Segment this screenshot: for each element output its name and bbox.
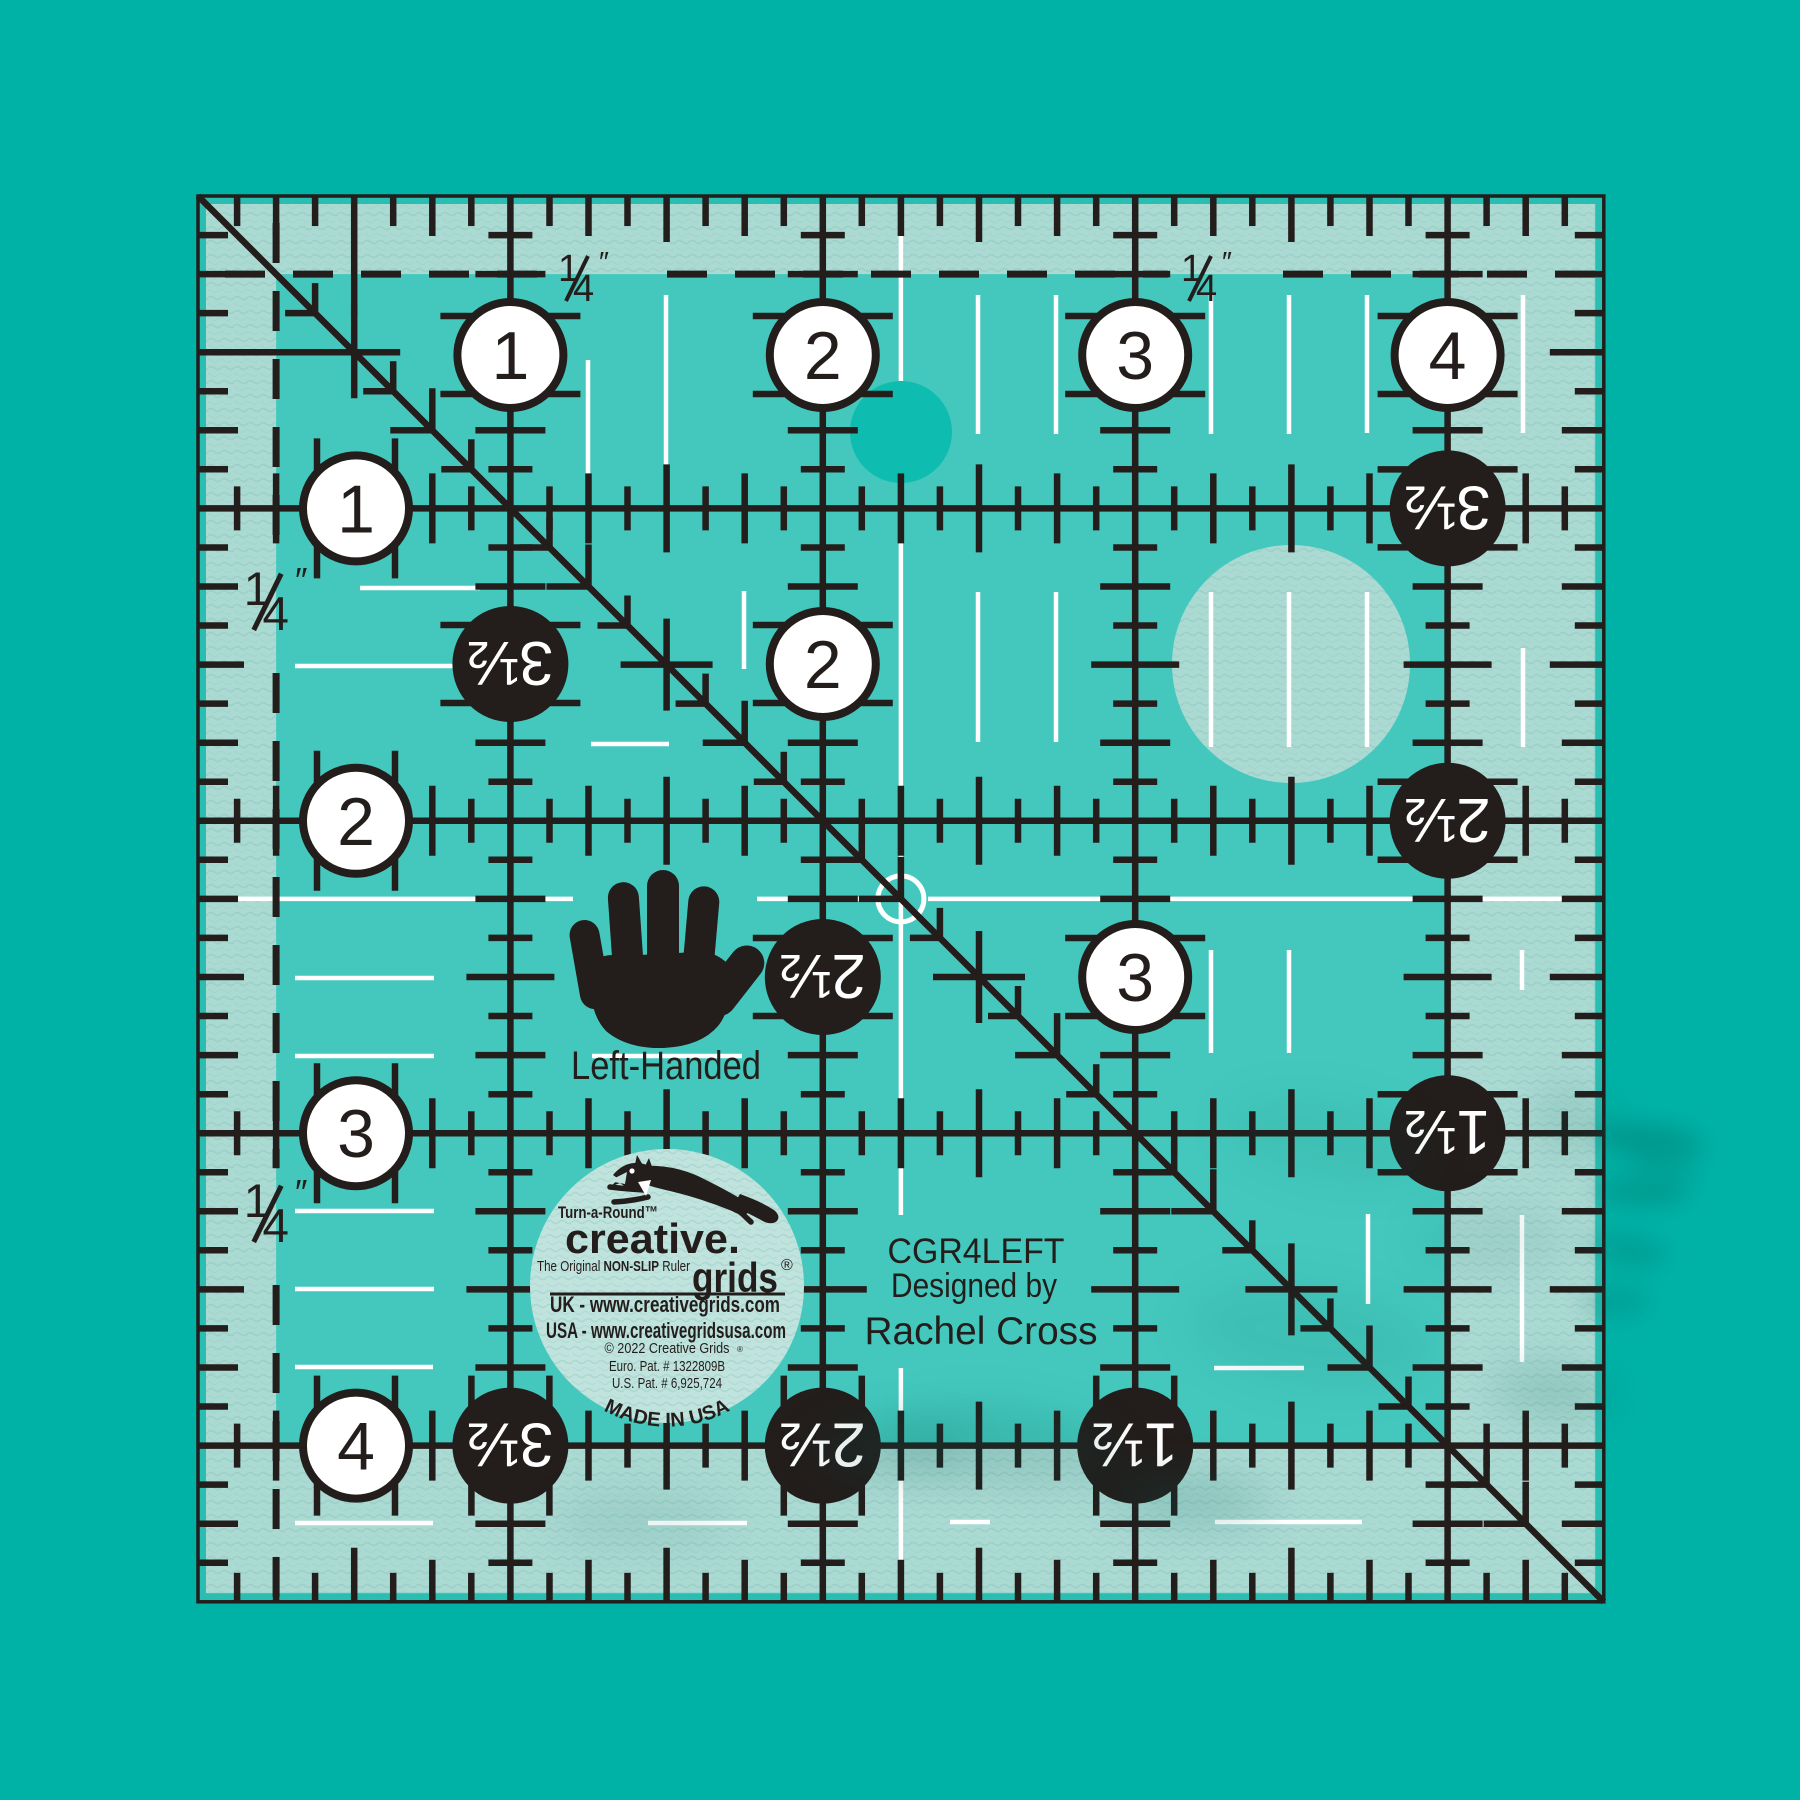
svg-text:3½: 3½ xyxy=(1404,472,1490,541)
svg-text:″: ″ xyxy=(1222,246,1232,277)
svg-text:″: ″ xyxy=(599,246,609,277)
svg-text:The Original NON-SLIP Ruler: The Original NON-SLIP Ruler xyxy=(537,1258,690,1275)
svg-text:3: 3 xyxy=(1116,940,1154,1016)
svg-text:4: 4 xyxy=(1196,268,1217,310)
svg-text:Left-Handed: Left-Handed xyxy=(571,1044,761,1088)
svg-text:®: ® xyxy=(781,1257,793,1274)
svg-text:Rachel Cross: Rachel Cross xyxy=(865,1310,1098,1353)
svg-text:© 2022 Creative Grids: © 2022 Creative Grids xyxy=(605,1341,730,1357)
svg-text:2: 2 xyxy=(804,318,842,394)
svg-text:3: 3 xyxy=(337,1096,375,1172)
svg-text:USA - www.creativegridsusa.com: USA - www.creativegridsusa.com xyxy=(546,1318,786,1343)
svg-text:4: 4 xyxy=(263,1200,289,1253)
svg-text:″: ″ xyxy=(295,562,307,601)
svg-text:4: 4 xyxy=(263,588,289,641)
svg-text:3: 3 xyxy=(1116,318,1154,394)
svg-text:CGR4LEFT: CGR4LEFT xyxy=(888,1232,1065,1271)
svg-text:1: 1 xyxy=(337,471,375,547)
svg-text:Euro. Pat. # 1322809B: Euro. Pat. # 1322809B xyxy=(609,1358,725,1375)
svg-text:4: 4 xyxy=(337,1409,375,1485)
svg-text:2½: 2½ xyxy=(1404,785,1490,854)
svg-text:1: 1 xyxy=(491,318,529,394)
svg-text:4: 4 xyxy=(1429,318,1467,394)
svg-text:4: 4 xyxy=(573,268,594,310)
svg-text:Designed by: Designed by xyxy=(891,1267,1057,1305)
svg-text:®: ® xyxy=(737,1345,743,1354)
svg-text:″: ″ xyxy=(295,1174,307,1213)
svg-text:2½: 2½ xyxy=(780,941,866,1010)
svg-text:2: 2 xyxy=(337,784,375,860)
svg-text:UK - www.creativegrids.com: UK - www.creativegrids.com xyxy=(550,1292,780,1317)
svg-text:3½: 3½ xyxy=(467,628,553,697)
svg-text:3½: 3½ xyxy=(467,1410,553,1479)
svg-text:2: 2 xyxy=(804,627,842,703)
svg-text:U.S. Pat. # 6,925,724: U.S. Pat. # 6,925,724 xyxy=(612,1375,722,1392)
